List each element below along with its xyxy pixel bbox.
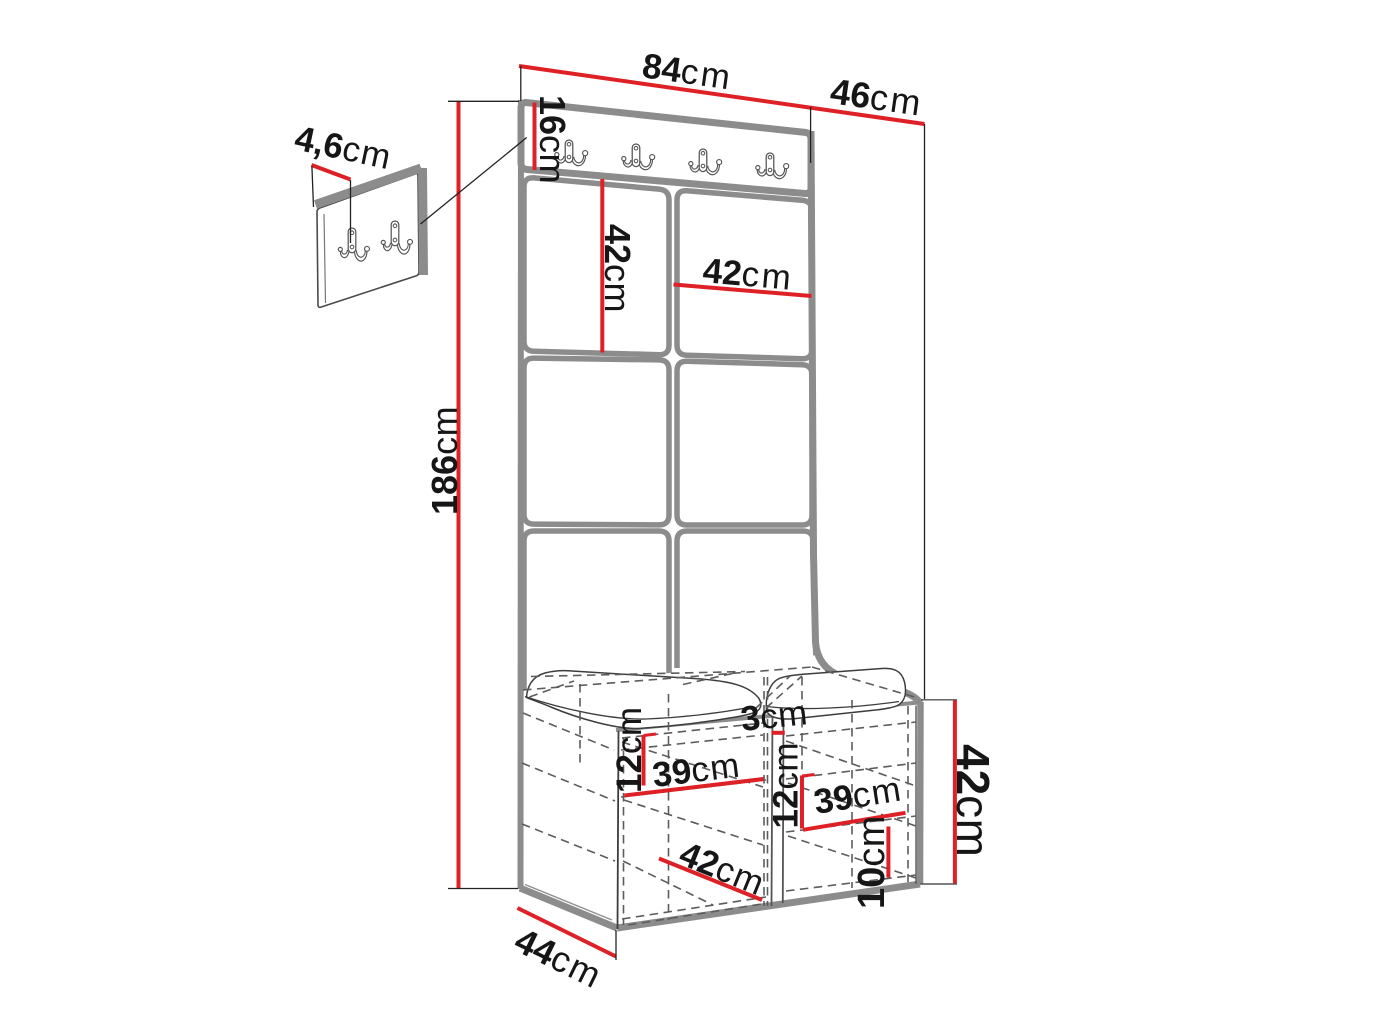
svg-text:12cm: 12cm: [767, 742, 806, 829]
svg-text:42cm: 42cm: [597, 224, 638, 313]
svg-text:12cm: 12cm: [610, 706, 649, 793]
svg-text:42cm: 42cm: [701, 251, 795, 298]
svg-text:42cm: 42cm: [947, 744, 999, 858]
svg-text:186cm: 186cm: [424, 406, 465, 515]
svg-text:16cm: 16cm: [532, 95, 573, 184]
svg-text:3cm: 3cm: [739, 693, 810, 739]
svg-text:10cm: 10cm: [851, 815, 893, 909]
